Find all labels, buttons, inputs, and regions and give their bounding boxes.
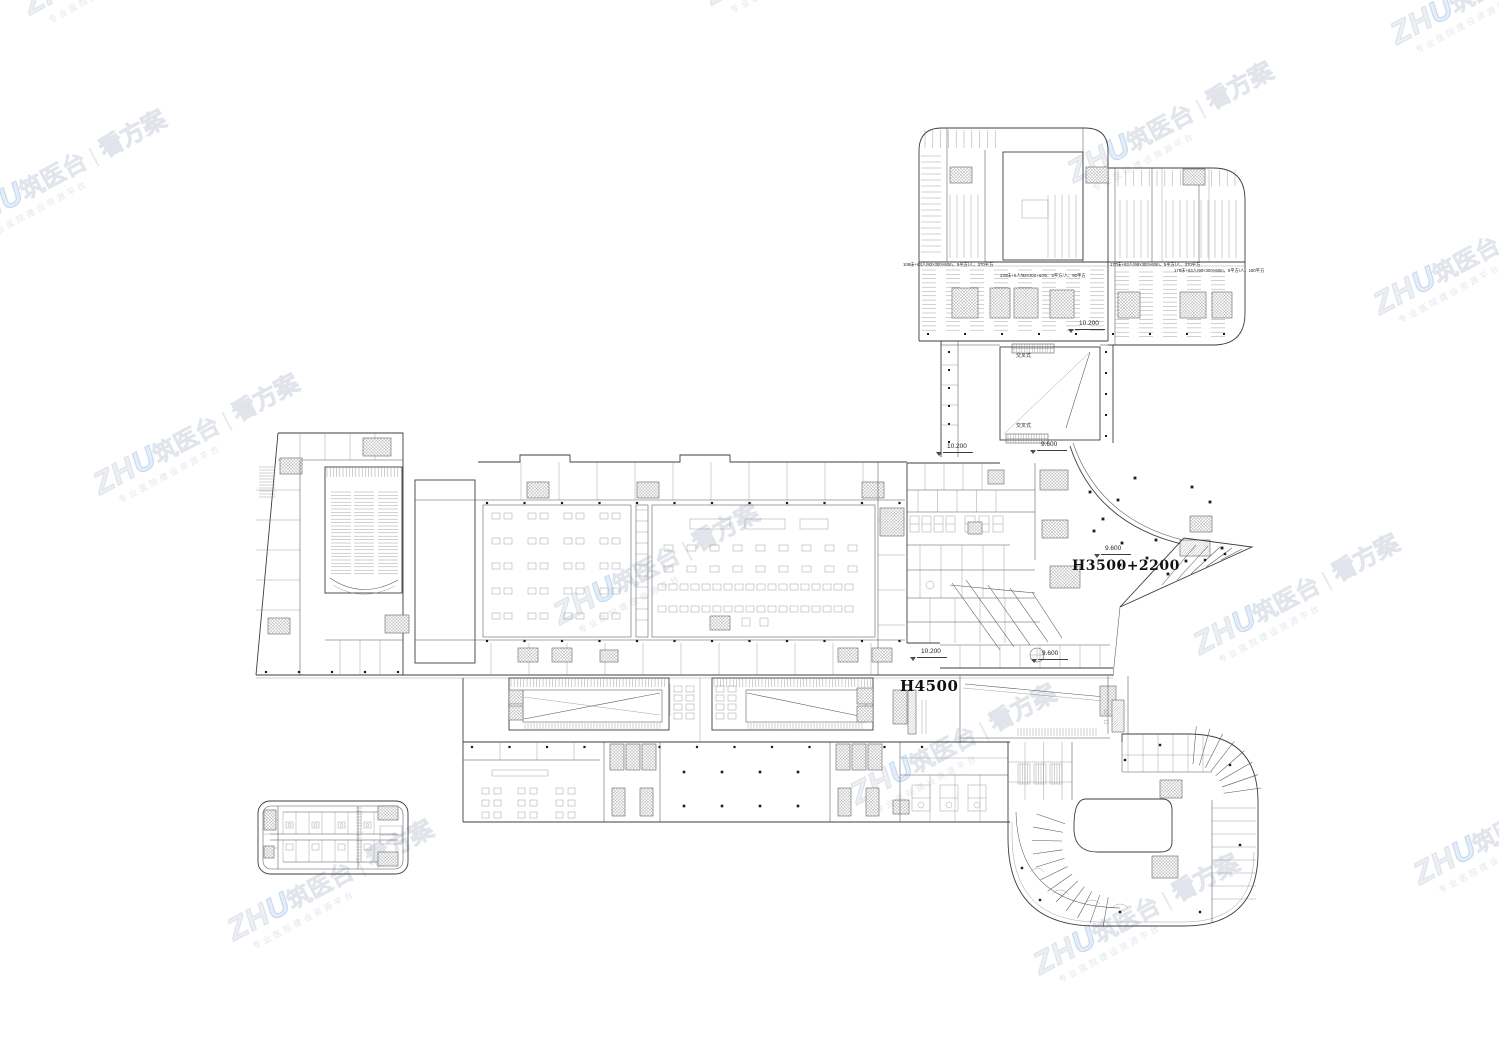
elevation-value: 10.200 [1079,321,1105,328]
height-label-h4500: H4500 [900,679,958,694]
elevation-triangle-icon [1068,329,1074,333]
elevation-leader [1075,329,1105,330]
area-annotation: 177床+63人/98×300×60m、5平方/人、370平方 [1110,263,1200,267]
elevation-marker: 9.600 [1030,442,1067,454]
elevation-triangle-icon [1031,659,1037,663]
elevation-marker: 10.200 [1068,321,1105,333]
elevation-triangle-icon [936,452,942,456]
floor-plan-drawing [0,0,1499,1060]
elevation-marker: 10.200 [910,649,947,661]
area-annotation: 108床+63人/90×300×60m、5平方/人、370平方 [903,263,993,267]
elevation-marker: 9.600 [1031,651,1068,663]
elevation-triangle-icon [1030,450,1036,454]
area-annotation: 178床+63人/98×300×60m、5平方/人、180平方 [1174,269,1264,273]
elevation-marker: 9.600 [1094,546,1131,558]
escalator-label: 交叉式 [1016,354,1031,359]
area-annotation: 230床+6人/9a×300×60m、5平方/人、90平方 [1000,274,1086,278]
elevation-marker: 10.200 [936,444,973,456]
escalator-label: 交叉式 [1016,424,1031,429]
elevation-triangle-icon [1094,554,1100,558]
height-label-h3500: H3500+2200 [1072,559,1180,573]
canvas: ZHU筑医台|看方案专业医院建设资源平台ZHU筑医台|看方案专业医院建设资源平台… [0,0,1499,1060]
elevation-triangle-icon [910,657,916,661]
